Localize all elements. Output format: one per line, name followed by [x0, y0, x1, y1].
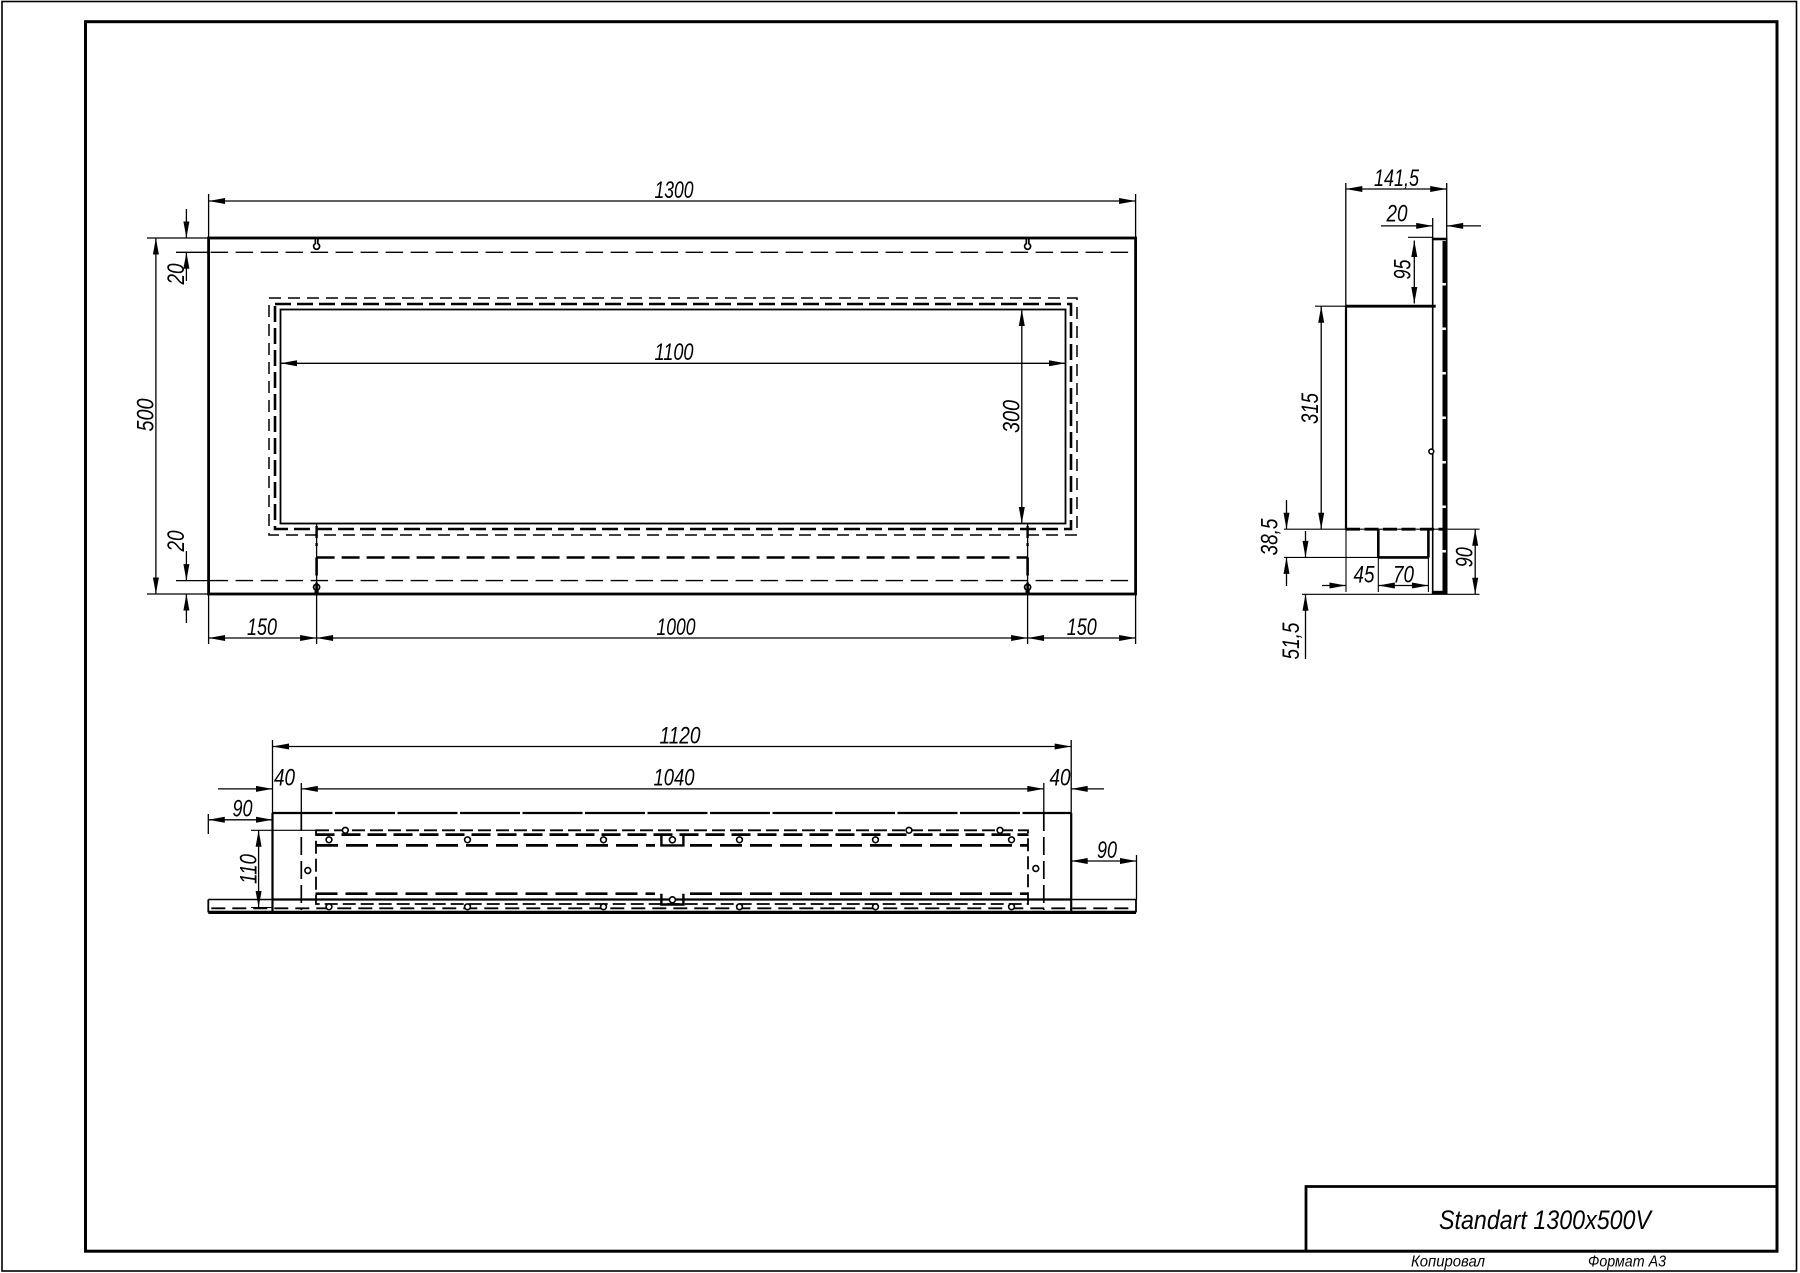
svg-text:70: 70	[1393, 561, 1415, 588]
svg-text:20: 20	[163, 263, 190, 285]
svg-text:300: 300	[999, 399, 1026, 433]
svg-text:20: 20	[1386, 201, 1408, 228]
svg-text:Формат А3: Формат А3	[1588, 1254, 1666, 1271]
svg-text:150: 150	[247, 614, 277, 641]
svg-text:150: 150	[1067, 614, 1097, 641]
svg-text:Standart 1300x500V: Standart 1300x500V	[1439, 1205, 1654, 1235]
svg-text:40: 40	[274, 765, 296, 792]
svg-text:95: 95	[1389, 259, 1416, 279]
svg-text:1120: 1120	[660, 722, 702, 749]
svg-text:90: 90	[1452, 547, 1479, 567]
svg-text:40: 40	[1050, 765, 1072, 792]
svg-text:90: 90	[233, 796, 253, 823]
svg-text:500: 500	[133, 398, 160, 432]
svg-text:110: 110	[236, 853, 263, 884]
svg-text:Копировал: Копировал	[1411, 1254, 1485, 1271]
svg-text:141,5: 141,5	[1374, 165, 1419, 192]
svg-text:51,5: 51,5	[1278, 622, 1305, 660]
svg-text:38,5: 38,5	[1257, 518, 1284, 556]
svg-text:45: 45	[1354, 561, 1376, 588]
svg-text:20: 20	[163, 530, 190, 552]
svg-text:1100: 1100	[655, 339, 694, 366]
svg-text:1040: 1040	[654, 765, 696, 792]
svg-text:1300: 1300	[655, 177, 694, 204]
svg-text:315: 315	[1297, 392, 1324, 424]
svg-text:90: 90	[1097, 837, 1117, 864]
svg-text:1000: 1000	[657, 614, 696, 641]
